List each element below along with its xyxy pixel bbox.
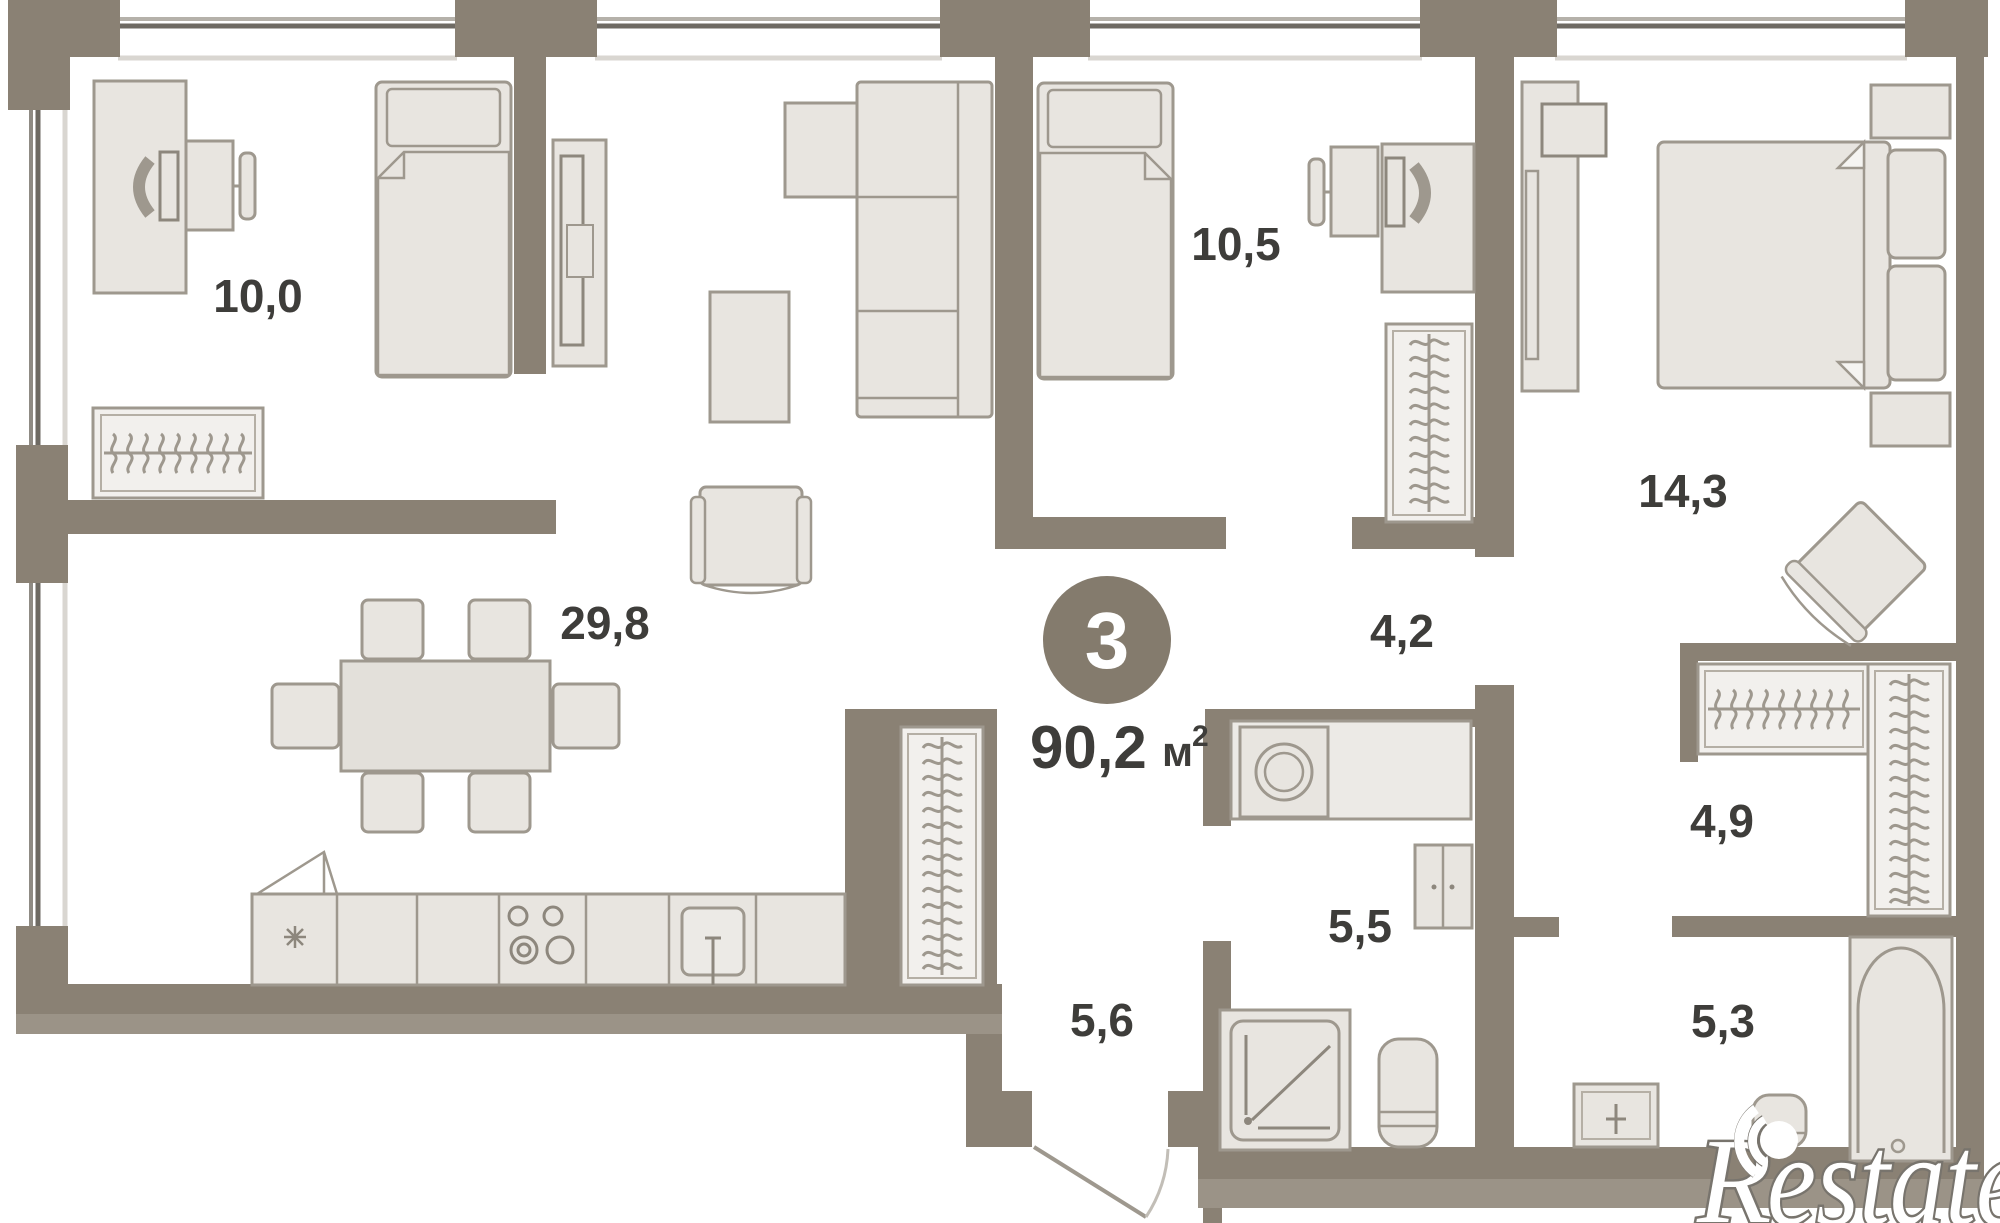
svg-text:4,9: 4,9 [1690, 795, 1754, 847]
svg-text:14,3: 14,3 [1638, 465, 1728, 517]
svg-text:5,5: 5,5 [1328, 900, 1392, 952]
svg-text:10,0: 10,0 [213, 270, 303, 322]
svg-text:м: м [1162, 728, 1193, 775]
svg-text:2: 2 [1192, 720, 1209, 753]
svg-text:4,2: 4,2 [1370, 605, 1434, 657]
svg-text:10,5: 10,5 [1191, 218, 1281, 270]
svg-text:3: 3 [1085, 596, 1130, 685]
svg-text:estate: estate [1767, 1109, 2000, 1223]
svg-text:5,3: 5,3 [1691, 995, 1755, 1047]
svg-text:29,8: 29,8 [560, 597, 650, 649]
svg-text:5,6: 5,6 [1070, 994, 1134, 1046]
svg-text:90,2: 90,2 [1030, 714, 1147, 781]
